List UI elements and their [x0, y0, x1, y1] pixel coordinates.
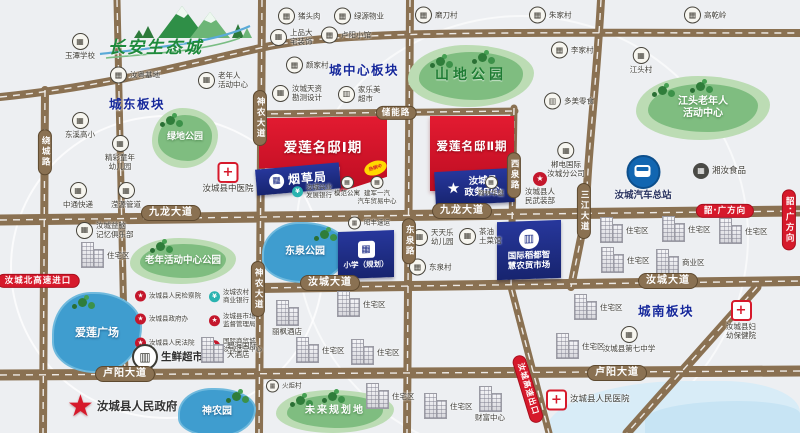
planned-school-block: 小学（规划）	[338, 230, 394, 279]
sanjiang-avenue-label: 三江大道	[577, 183, 591, 239]
tcm-hospital-icon: +	[217, 162, 238, 183]
tree-icon	[696, 82, 705, 91]
jiulong-avenue-west-label: 九龙大道	[141, 205, 201, 221]
zhujia-village-icon: ▦	[529, 7, 546, 24]
duomei-snacks: ▥多美零食	[544, 93, 594, 110]
residential-2-label: 住宅区	[363, 300, 386, 309]
luyang-avenue-east: 卢阳大道	[587, 365, 647, 381]
dongquan-park-label: 东泉公园	[285, 246, 325, 259]
procuratorate: ★汝城县人民检察院	[135, 291, 201, 302]
residential-4-label: 住宅区	[377, 348, 400, 357]
building-icon	[295, 337, 319, 363]
chendian-international-icon: ▦	[558, 142, 575, 159]
jialemei-supermarket: ▥家乐美 超市	[338, 85, 381, 103]
zhongtong-express: ▦中通快递	[63, 182, 93, 209]
jingcai-kindergarten-icon: ▦	[112, 135, 129, 152]
yanjia-village-icon: ▦	[286, 57, 303, 74]
hanlin-huating-icon: ▦	[485, 176, 498, 189]
residential-10: 住宅区	[600, 247, 650, 273]
xiquan-road-label: 西泉路	[507, 152, 521, 198]
rucheng-avenue-east-label: 汝城大道	[638, 273, 698, 289]
residential-11-label: 住宅区	[600, 303, 623, 312]
lijia-village-label: 李家村	[571, 46, 594, 55]
tiantianle-kindergarten: ▦天天乐 幼儿园	[411, 228, 454, 246]
hanlin-huating: ▦翰林华庭	[478, 176, 504, 198]
modao-village: ▦磨刀村	[415, 7, 458, 24]
residential-4: 住宅区	[350, 339, 400, 365]
luyang-avenue-west: 卢阳大道	[95, 366, 155, 382]
mofan-apartment: ▦模范公寓	[334, 176, 360, 198]
senior-activity-center-icon: ▦	[198, 72, 215, 89]
memory-club-label: 汝城益脑 记忆俱乐部	[96, 221, 134, 239]
auto-trade-center-label: 建军一汽 汽车贸易中心	[358, 190, 397, 206]
maternity-hospital: +汝城县妇 幼保健院	[726, 300, 756, 340]
shennong-avenue-north: 神农大道	[253, 90, 267, 146]
commercial-1-label: 商业区	[682, 258, 705, 267]
yanjia-village: ▦颜家村	[286, 57, 329, 74]
luyang-restaurant-label: 卢阳小馆	[341, 31, 371, 40]
tree-icon	[296, 396, 305, 405]
rucheng-avenue-west-label: 汝城大道	[300, 275, 360, 291]
dongquan-road-label: 东泉路	[402, 218, 416, 264]
residential-6: 住宅区	[423, 393, 473, 419]
shennong-avenue-north-label: 神农大道	[253, 90, 267, 146]
residential-6-label: 住宅区	[450, 402, 473, 411]
tree-icon	[156, 242, 165, 251]
wealth-center-label: 财富中心	[475, 413, 505, 422]
east-district: 城东板块	[109, 97, 165, 112]
dongxi-school: ▦东溪高小	[65, 112, 95, 139]
lvyuan-property-label: 绿源物业	[354, 12, 384, 21]
gaoqianling-label: 高乾岭	[704, 11, 727, 20]
center-district-label: 城中心板块	[329, 63, 399, 78]
modao-village-icon: ▦	[415, 7, 432, 24]
huoju-village: ▦火炬村	[266, 380, 302, 393]
xingye-bank-icon: ¥	[292, 187, 303, 198]
luyang-avenue-west-label: 卢阳大道	[95, 366, 155, 382]
huoju-village-label: 火炬村	[282, 382, 302, 390]
xingye-bank: ¥汝城兴业 发展银行	[292, 184, 332, 200]
fresh-supermarket-label: 生鲜超市	[161, 351, 203, 364]
zhaofeng-express: ▦昭丰速运	[348, 217, 390, 230]
building-icon	[200, 337, 224, 363]
chuneng-road: 储能路	[376, 106, 417, 120]
raocheng-road-label: 绕城路	[38, 129, 52, 175]
xiangru-food: ▦湘汝食品	[693, 163, 746, 179]
residential-5-label: 住宅区	[392, 392, 415, 401]
tree-icon	[328, 392, 337, 401]
building-icon	[350, 339, 374, 365]
shaoguang-direction-label: 韶·广方向	[696, 204, 754, 218]
tianzi-survey-icon: ▦	[272, 85, 289, 102]
residential-9: 住宅区	[718, 218, 768, 244]
future-planning-area-label: 未来规划地	[305, 405, 365, 418]
yingyuan-pipeline-icon: ▦	[118, 182, 135, 199]
jiangtou-senior-park-label: 江头老年人 活动中心	[678, 96, 728, 121]
memory-club-icon: ▦	[76, 222, 93, 239]
shennong-avenue-south: 神农大道	[251, 261, 265, 317]
gaoqianling: ▦高乾岭	[684, 7, 727, 24]
mofan-apartment-label: 模范公寓	[334, 190, 360, 198]
residential-3-label: 住宅区	[322, 346, 345, 355]
south-district-label: 城南板块	[638, 304, 694, 319]
memory-club: ▦汝城益脑 记忆俱乐部	[76, 221, 134, 239]
residential-8-label: 住宅区	[688, 225, 711, 234]
residential-1-label: 住宅区	[107, 251, 130, 260]
rucheng-avenue-west: 汝城大道	[300, 275, 360, 291]
residential-5: 住宅区	[365, 383, 415, 409]
residential-3: 住宅区	[295, 337, 345, 363]
tree-icon	[478, 53, 487, 62]
building-icon	[268, 173, 284, 189]
shaoguang-direction-vertical: 韶·广方向	[782, 189, 796, 250]
cart-icon	[519, 228, 539, 249]
yutan-school-icon: ▦	[72, 33, 89, 50]
modao-village-label: 磨刀村	[435, 11, 458, 20]
dongxi-school-label: 东溪高小	[65, 130, 95, 139]
armed-forces-dept-icon: ★	[533, 172, 547, 186]
zhaofeng-express-icon: ▦	[348, 217, 361, 230]
procuratorate-label: 汝城县人民检察院	[149, 292, 201, 300]
yingyuan-pipeline-label: 滢源管道	[111, 200, 141, 209]
xiquan-road: 西泉路	[507, 152, 521, 198]
yutan-school: ▦玉潭学校	[65, 33, 95, 60]
duomei-snacks-icon: ▥	[544, 93, 561, 110]
building-icon	[718, 218, 742, 244]
jiangtou-village-label: 江头村	[630, 65, 653, 74]
zhujia-village-label: 朱家村	[549, 11, 572, 20]
yingyuan-pipeline: ▦滢源管道	[111, 182, 141, 209]
lijia-village: ▦李家村	[551, 42, 594, 59]
bihai-hotel: 碧海国际 大酒店	[200, 337, 257, 363]
market-regulator: ★汝城县市场 监督管理局	[209, 313, 256, 329]
tree-icon	[658, 86, 667, 95]
lifeng-hotel-label: 丽枫酒店	[272, 327, 302, 336]
planned-school-label: 小学（规划）	[344, 259, 389, 270]
peoples-hospital-label: 汝城县人民医院	[570, 395, 630, 405]
mofan-apartment-icon: ▦	[341, 176, 354, 189]
chuneng-road-label: 储能路	[376, 106, 417, 120]
residential-12-label: 住宅区	[582, 342, 605, 351]
residential-11: 住宅区	[573, 294, 623, 320]
market-regulator-icon: ★	[209, 316, 220, 327]
ruyue-base: ▦汝粤基地	[110, 67, 160, 84]
tea-oil-restaurant-icon: ▦	[459, 228, 476, 245]
rucheng-avenue-east: 汝城大道	[638, 273, 698, 289]
star-icon	[446, 180, 460, 196]
armed-forces-dept: ★汝城县人 民武装部	[525, 172, 555, 205]
shangpin-decor-label: 上品大 宅装饰	[290, 28, 313, 46]
zhutourou-shop-label: 猪头肉	[298, 12, 321, 21]
zhongtong-express-label: 中通快递	[63, 200, 93, 209]
residential-7: 住宅区	[599, 217, 649, 243]
huoju-village-icon: ▦	[266, 380, 279, 393]
rural-commercial-bank: ¥汝城农村 商业银行	[209, 289, 249, 305]
shaoguang-direction: 韶·广方向	[696, 204, 754, 218]
armed-forces-dept-label: 汝城县人 民武装部	[525, 187, 555, 205]
tcm-hospital: +汝城县中医院	[202, 162, 253, 194]
jialemei-supermarket-label: 家乐美 超市	[358, 85, 381, 103]
tianzi-survey-label: 汝城天资 勘测设计	[292, 84, 322, 102]
county-government: ★汝城县人民政府	[67, 389, 177, 425]
senior-activity-center-label: 老年人 活动中心	[218, 71, 248, 89]
lvyuan-property-icon: ▦	[334, 8, 351, 25]
xiangru-food-icon: ▦	[693, 163, 709, 179]
jingcai-kindergarten: ▦精彩童年 幼儿园	[105, 135, 135, 171]
building-icon	[555, 333, 579, 359]
dongxi-school-icon: ▦	[72, 112, 89, 129]
mountain-park-label: 山地公园	[435, 67, 507, 85]
shennong-avenue-south-label: 神农大道	[251, 261, 265, 317]
residential-10-label: 住宅区	[627, 256, 650, 265]
ruyue-base-icon: ▦	[110, 67, 127, 84]
gaoqianling-icon: ▦	[684, 7, 701, 24]
tree-icon	[166, 116, 175, 125]
county-gov-office-label: 汝城县政府办	[149, 315, 188, 323]
procuratorate-icon: ★	[135, 291, 146, 302]
no7-middle-school: ▦汝城县第七中学	[603, 326, 656, 353]
hanlin-huating-label: 翰林华庭	[478, 190, 504, 198]
building-icon	[655, 249, 679, 275]
lifeng-hotel: 丽枫酒店	[272, 300, 302, 336]
shangpin-decor-icon: ▦	[270, 29, 287, 46]
lijia-village-icon: ▦	[551, 42, 568, 59]
maternity-hospital-label: 汝城县妇 幼保健院	[726, 322, 756, 340]
building-icon	[661, 216, 685, 242]
building-icon	[275, 300, 299, 326]
auto-trade-center: ▦建军一汽 汽车贸易中心	[358, 176, 397, 206]
building-icon	[600, 247, 624, 273]
rural-commercial-bank-label: 汝城农村 商业银行	[223, 289, 249, 305]
jiangtou-village: ▦江头村	[630, 47, 653, 74]
tree-icon	[320, 230, 329, 239]
jiulong-avenue-east-label: 九龙大道	[432, 203, 492, 219]
residential-8: 住宅区	[661, 216, 711, 242]
luyang-avenue-east-label: 卢阳大道	[587, 365, 647, 381]
dongquan-road: 东泉路	[402, 218, 416, 264]
tree-icon	[436, 57, 445, 66]
raocheng-road: 绕城路	[38, 129, 52, 175]
duomei-snacks-label: 多美零食	[564, 97, 594, 106]
building-icon	[365, 383, 389, 409]
no7-middle-school-label: 汝城县第七中学	[603, 344, 656, 353]
county-gov-office: ★汝城县政府办	[135, 314, 188, 325]
sanjiang-avenue: 三江大道	[577, 183, 591, 239]
zhongtong-express-icon: ▦	[70, 182, 87, 199]
expressway-exit: 汝城高速出口	[493, 382, 563, 396]
shennong-garden-pond: 神农园	[178, 388, 256, 433]
lvyuan-property: ▦绿源物业	[334, 8, 384, 25]
building-icon	[80, 242, 104, 268]
tianzi-survey: ▦汝城天资 勘测设计	[272, 84, 322, 102]
county-government-icon: ★	[67, 389, 94, 425]
tiantianle-kindergarten-label: 天天乐 幼儿园	[431, 228, 454, 246]
jiangtou-village-icon: ▦	[633, 47, 650, 64]
jialemei-supermarket-icon: ▥	[338, 86, 355, 103]
shaoguang-direction-vertical-label: 韶·广方向	[782, 189, 796, 250]
zhujia-village: ▦朱家村	[529, 7, 572, 24]
yanjia-village-label: 颜家村	[306, 61, 329, 70]
county-government-label: 汝城县人民政府	[97, 400, 178, 414]
luyang-restaurant: ▦卢阳小馆	[321, 27, 371, 44]
xingye-bank-label: 汝城兴业 发展银行	[306, 184, 332, 200]
auto-trade-center-icon: ▦	[371, 176, 384, 189]
building-icon	[423, 393, 447, 419]
tea-oil-restaurant-label: 茶油 土菜馆	[479, 227, 502, 245]
county-gov-office-icon: ★	[135, 314, 146, 325]
real-estate-location-map: 绿地公园 山地公园 江头老年人 活动中心 老年活动中心公园 未来规划地 神农园 …	[0, 0, 800, 433]
smart-farm-market-block: 国际稻都智 慧农贸市场	[497, 220, 561, 280]
residential-2: 住宅区	[336, 291, 386, 317]
shangpin-decor: ▦上品大 宅装饰	[270, 28, 313, 46]
no7-middle-school-icon: ▦	[621, 326, 638, 343]
rural-commercial-bank-icon: ¥	[209, 292, 220, 303]
maternity-hospital-icon: +	[731, 300, 752, 321]
ailian-phase1-title: 爱莲名邸Ⅰ期	[259, 136, 387, 156]
jiulong-avenue-east: 九龙大道	[432, 203, 492, 219]
tree-icon	[232, 392, 241, 401]
residential-1: 住宅区	[80, 242, 130, 268]
jingcai-kindergarten-label: 精彩童年 幼儿园	[105, 153, 135, 171]
bus-station-label: 汝城汽车总站	[614, 190, 671, 201]
expressway-entrance-north-label: 汝城北高速进口	[0, 274, 79, 288]
school-icon	[358, 240, 375, 258]
center-district: 城中心板块	[329, 63, 399, 78]
dongquan-village-label: 东泉村	[429, 263, 452, 272]
building-icon	[336, 291, 360, 317]
zhutourou-shop-icon: ▦	[278, 8, 295, 25]
luyang-restaurant-icon: ▦	[321, 27, 338, 44]
building-icon	[599, 217, 623, 243]
residential-7-label: 住宅区	[626, 226, 649, 235]
building-icon	[573, 294, 597, 320]
ruyue-base-label: 汝粤基地	[130, 71, 160, 80]
expressway-entrance-north: 汝城北高速进口	[0, 274, 79, 288]
senior-activity-center: ▦老年人 活动中心	[198, 71, 248, 89]
south-district: 城南板块	[638, 304, 694, 319]
jiulong-avenue-west: 九龙大道	[141, 205, 201, 221]
ailian-square-label: 爱莲广场	[75, 326, 119, 340]
zhutourou-shop: ▦猪头肉	[278, 8, 321, 25]
bus-station: 汝城汽车总站	[614, 155, 671, 201]
tea-oil-restaurant: ▦茶油 土菜馆	[459, 227, 502, 245]
residential-9-label: 住宅区	[745, 227, 768, 236]
changan-eco-city-logo: 长安生态城	[90, 0, 260, 64]
ailian-phase2-title: 爱莲名邸Ⅱ期	[430, 138, 514, 154]
smart-farm-market-label: 国际稻都智 慧农贸市场	[508, 250, 551, 272]
shennong-garden-label: 神农园	[202, 406, 232, 419]
logo-title: 长安生态城	[108, 33, 203, 58]
commercial-1: 商业区	[655, 249, 705, 275]
east-district-label: 城东板块	[109, 97, 165, 112]
yutan-school-label: 玉潭学校	[65, 51, 95, 60]
senior-activity-park-label: 老年活动中心公园	[145, 255, 221, 267]
bus-icon	[626, 155, 660, 189]
xiangru-food-label: 湘汝食品	[712, 166, 746, 176]
tcm-hospital-label: 汝城县中医院	[202, 184, 253, 194]
bihai-hotel-label: 碧海国际 大酒店	[227, 341, 257, 359]
greenland-park-label: 绿地公园	[167, 132, 203, 143]
residential-12: 住宅区	[555, 333, 605, 359]
zhaofeng-express-label: 昭丰速运	[364, 219, 390, 227]
tree-icon	[78, 298, 87, 307]
